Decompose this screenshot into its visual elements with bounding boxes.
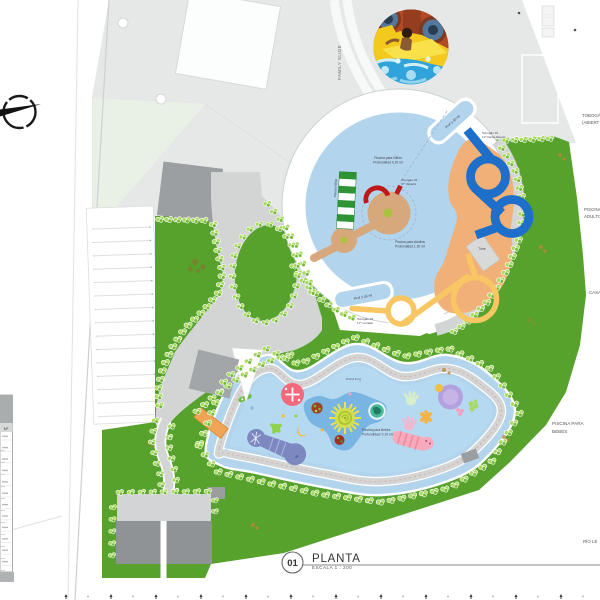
svg-text:M²: M² bbox=[4, 426, 9, 431]
svg-text:FAMILY SLIDE: FAMILY SLIDE bbox=[337, 45, 342, 80]
svg-text:Piscina para NiñosProfundidad: Piscina para NiñosProfundidad 0.20 mt bbox=[373, 156, 403, 165]
svg-text:Tobogán 0337° Abierto: Tobogán 0337° Abierto bbox=[401, 178, 417, 186]
svg-text:01: 01 bbox=[287, 558, 298, 569]
svg-text:Piscina para BebésProfundidad:: Piscina para BebésProfundidad: 0.10 mt bbox=[362, 428, 393, 437]
svg-text:Prof 0.9 mt: Prof 0.9 mt bbox=[346, 377, 361, 381]
svg-text:ESCALA 1 : 200: ESCALA 1 : 200 bbox=[312, 565, 352, 570]
svg-text:PLANTA: PLANTA bbox=[312, 553, 361, 565]
svg-text:Tobogán 0217° cerrado: Tobogán 0217° cerrado bbox=[357, 317, 373, 325]
svg-text:Torre: Torre bbox=[478, 247, 485, 251]
svg-text:RÍO LE: RÍO LE bbox=[583, 539, 597, 544]
svg-text:CASA: CASA bbox=[589, 290, 600, 295]
svg-text:Piscina para AdultosProfundida: Piscina para AdultosProfundidad 1.20 mt bbox=[395, 240, 425, 249]
